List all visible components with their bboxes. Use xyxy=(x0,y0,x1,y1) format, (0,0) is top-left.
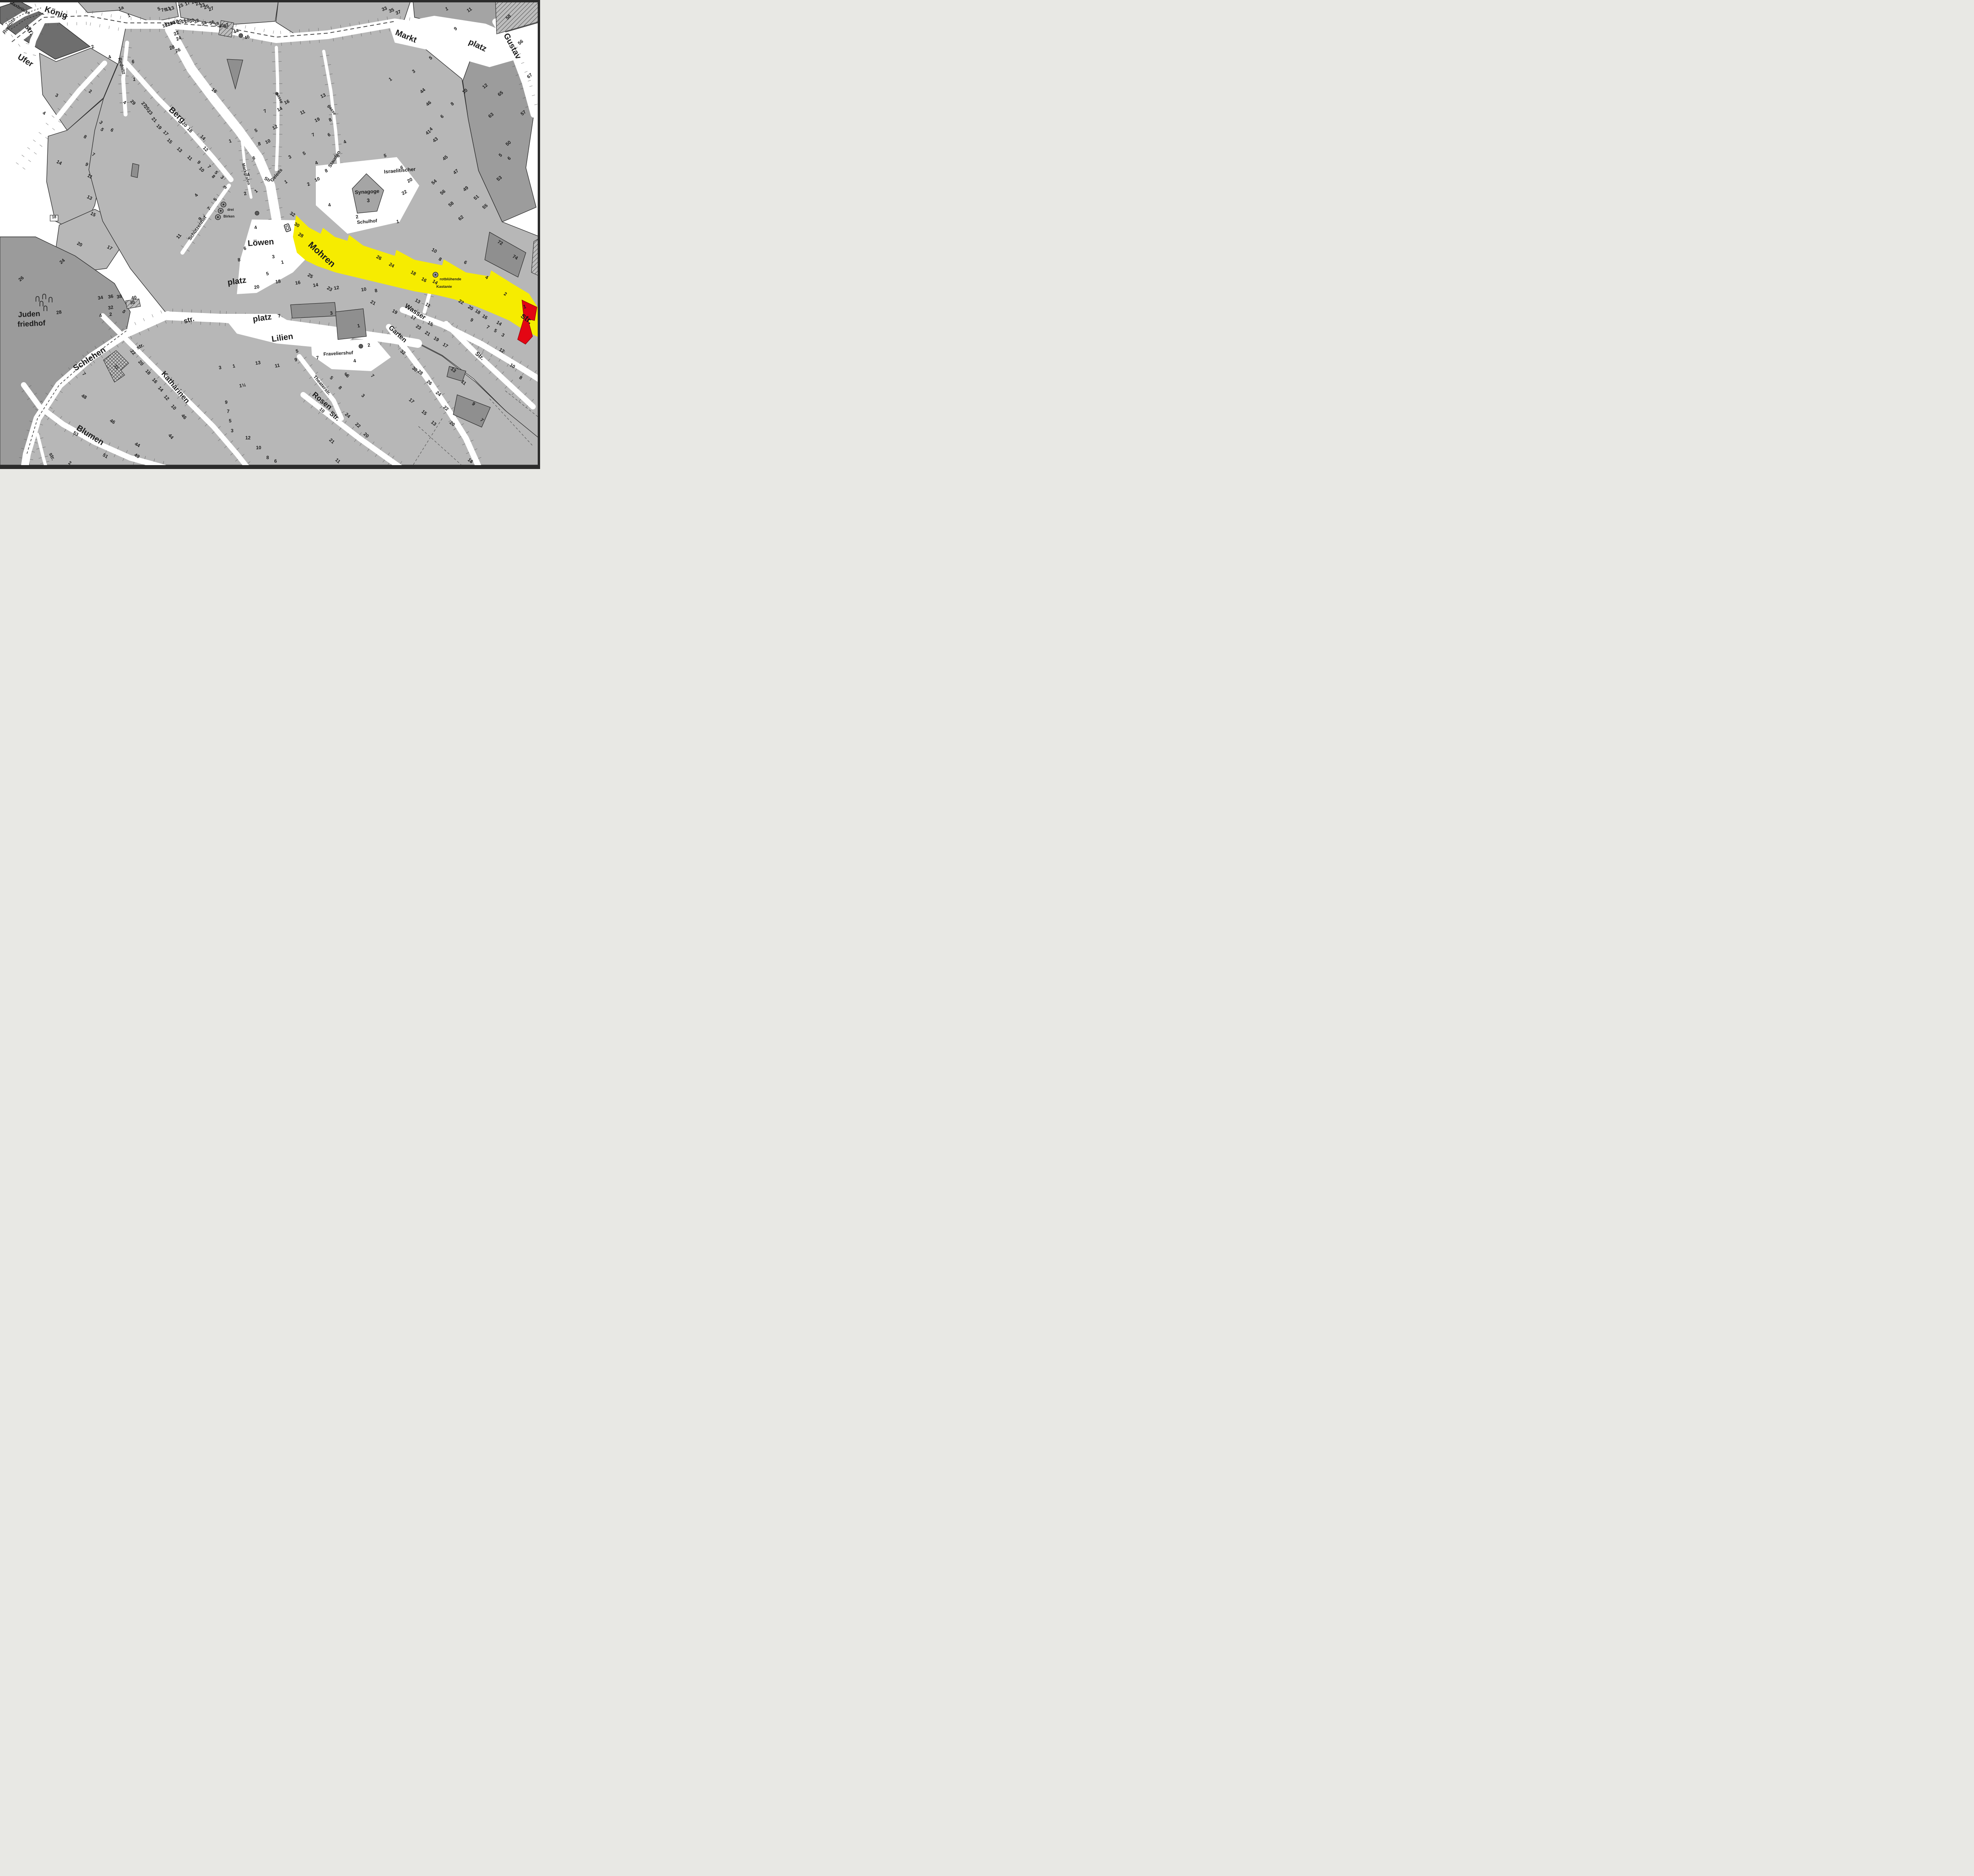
dark-strip-building xyxy=(131,163,139,178)
house-number: 1½ xyxy=(239,382,246,389)
house-number: 20 xyxy=(254,284,260,290)
house-number: 10 xyxy=(256,445,261,450)
tree-icon-center xyxy=(217,216,219,218)
house-number: 32 xyxy=(108,304,114,311)
house-number: 16 xyxy=(295,280,301,286)
house-number: 34 xyxy=(98,295,104,301)
city-map: MaxbrückeRednitzKönigstr.UferRednitzBerg… xyxy=(0,0,540,469)
house-number: 6 xyxy=(274,458,277,464)
place-label-birken: Birken xyxy=(223,214,235,218)
place-label-kastanie: Kastanie xyxy=(436,285,452,289)
house-number: 12 xyxy=(334,285,340,291)
house-number: 10 xyxy=(361,286,367,293)
frame-right xyxy=(538,0,540,469)
place-label-juden: Juden xyxy=(18,310,40,319)
tree-dot-icon xyxy=(239,34,243,38)
place-label-rotbluehende: rotblühende xyxy=(440,277,462,281)
tree-dot-icon xyxy=(255,211,259,215)
house-number: 6 xyxy=(132,59,135,64)
building-fravelier-1 xyxy=(336,309,366,340)
tree-dot-icon xyxy=(359,344,363,348)
house-number: 5 xyxy=(229,418,232,424)
frame-bottom xyxy=(0,465,540,469)
scanned-city-map-page: MaxbrückeRednitzKönigstr.UferRednitzBerg… xyxy=(0,0,540,469)
place-label-drei: drei xyxy=(227,208,234,212)
frame-top xyxy=(0,0,540,2)
house-number: 30 xyxy=(129,300,135,306)
house-number: 9 xyxy=(225,400,228,405)
house-number: 38 xyxy=(116,293,123,300)
house-number: 8 xyxy=(266,455,269,460)
house-number: 3 xyxy=(231,428,234,433)
tree-icon-center xyxy=(220,210,222,212)
house-number: 7 xyxy=(227,409,230,414)
house-number: 28 xyxy=(56,309,62,315)
place-label-synagoge-nr: 3 xyxy=(367,197,370,203)
house-number: 13 xyxy=(255,360,261,366)
house-number: 36 xyxy=(108,293,114,300)
house-number: 18 xyxy=(275,278,281,285)
tree-icon-center xyxy=(223,204,225,206)
house-number: 14 xyxy=(313,282,319,288)
tree-icon-center xyxy=(435,274,437,276)
house-number: 18 xyxy=(52,215,56,219)
house-number: 1 xyxy=(133,77,136,82)
house-number: 12 xyxy=(245,435,251,441)
place-label-friedhof: friedhof xyxy=(17,319,46,329)
street-label-loewen: Löwen xyxy=(248,237,274,248)
